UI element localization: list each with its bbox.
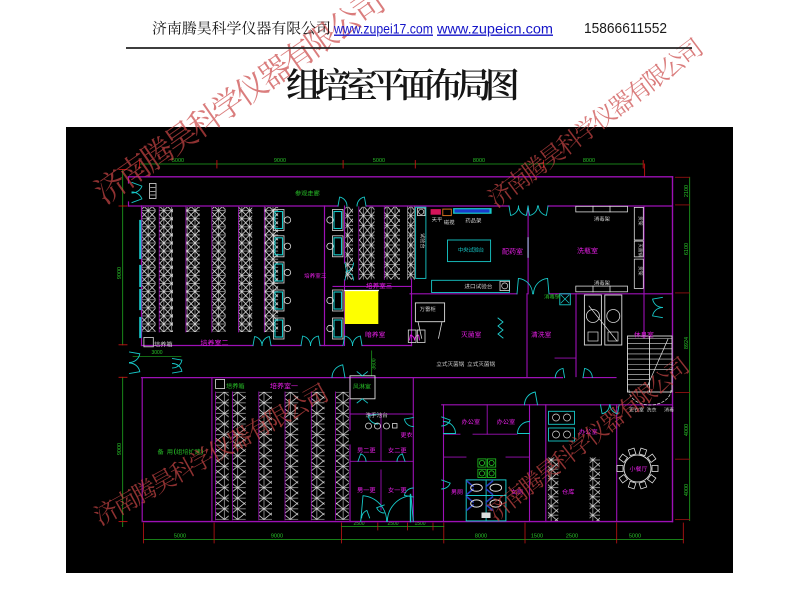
svg-text:6100: 6100 [684, 243, 690, 255]
svg-text:1500: 1500 [531, 534, 543, 540]
svg-text:4000: 4000 [684, 424, 690, 436]
svg-text:8000: 8000 [583, 158, 595, 164]
svg-text:4000: 4000 [684, 484, 690, 496]
svg-text:www.zupei17.com: www.zupei17.com [333, 21, 433, 37]
svg-text:5000: 5000 [172, 158, 184, 164]
svg-text:9000: 9000 [117, 267, 123, 279]
svg-text:9000: 9000 [117, 443, 123, 455]
svg-text:15866611552: 15866611552 [584, 20, 667, 37]
svg-text:5000: 5000 [629, 534, 641, 540]
svg-text:www.zupeicn.com: www.zupeicn.com [436, 21, 553, 37]
svg-text:3600: 3600 [372, 358, 378, 369]
svg-text:8000: 8000 [475, 534, 487, 540]
svg-text:5000: 5000 [373, 158, 385, 164]
svg-text:3000: 3000 [151, 350, 162, 356]
svg-text:8924: 8924 [684, 337, 690, 349]
svg-text:9000: 9000 [274, 158, 286, 164]
svg-text:2500: 2500 [566, 534, 578, 540]
svg-text:5000: 5000 [174, 534, 186, 540]
svg-text:2100: 2100 [684, 185, 690, 197]
svg-text:8000: 8000 [473, 158, 485, 164]
svg-text:9000: 9000 [271, 534, 283, 540]
